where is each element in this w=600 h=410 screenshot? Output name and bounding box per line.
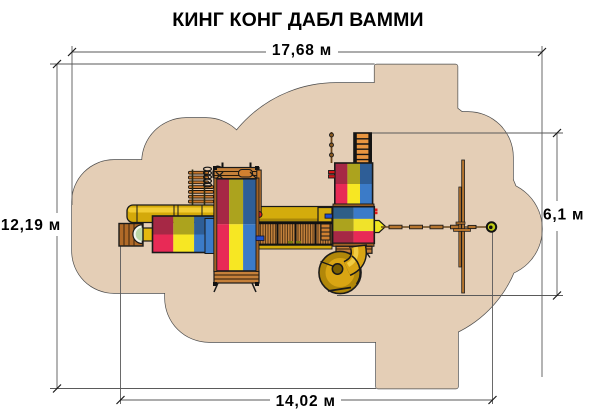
svg-text:14,02 м: 14,02 м [276, 393, 336, 410]
svg-text:12,19 м: 12,19 м [1, 217, 61, 234]
svg-text:17,68 м: 17,68 м [272, 42, 332, 59]
svg-text:КИНГ КОНГ ДАБЛ ВАММИ: КИНГ КОНГ ДАБЛ ВАММИ [172, 9, 423, 31]
svg-text:6,1 м: 6,1 м [543, 207, 584, 224]
